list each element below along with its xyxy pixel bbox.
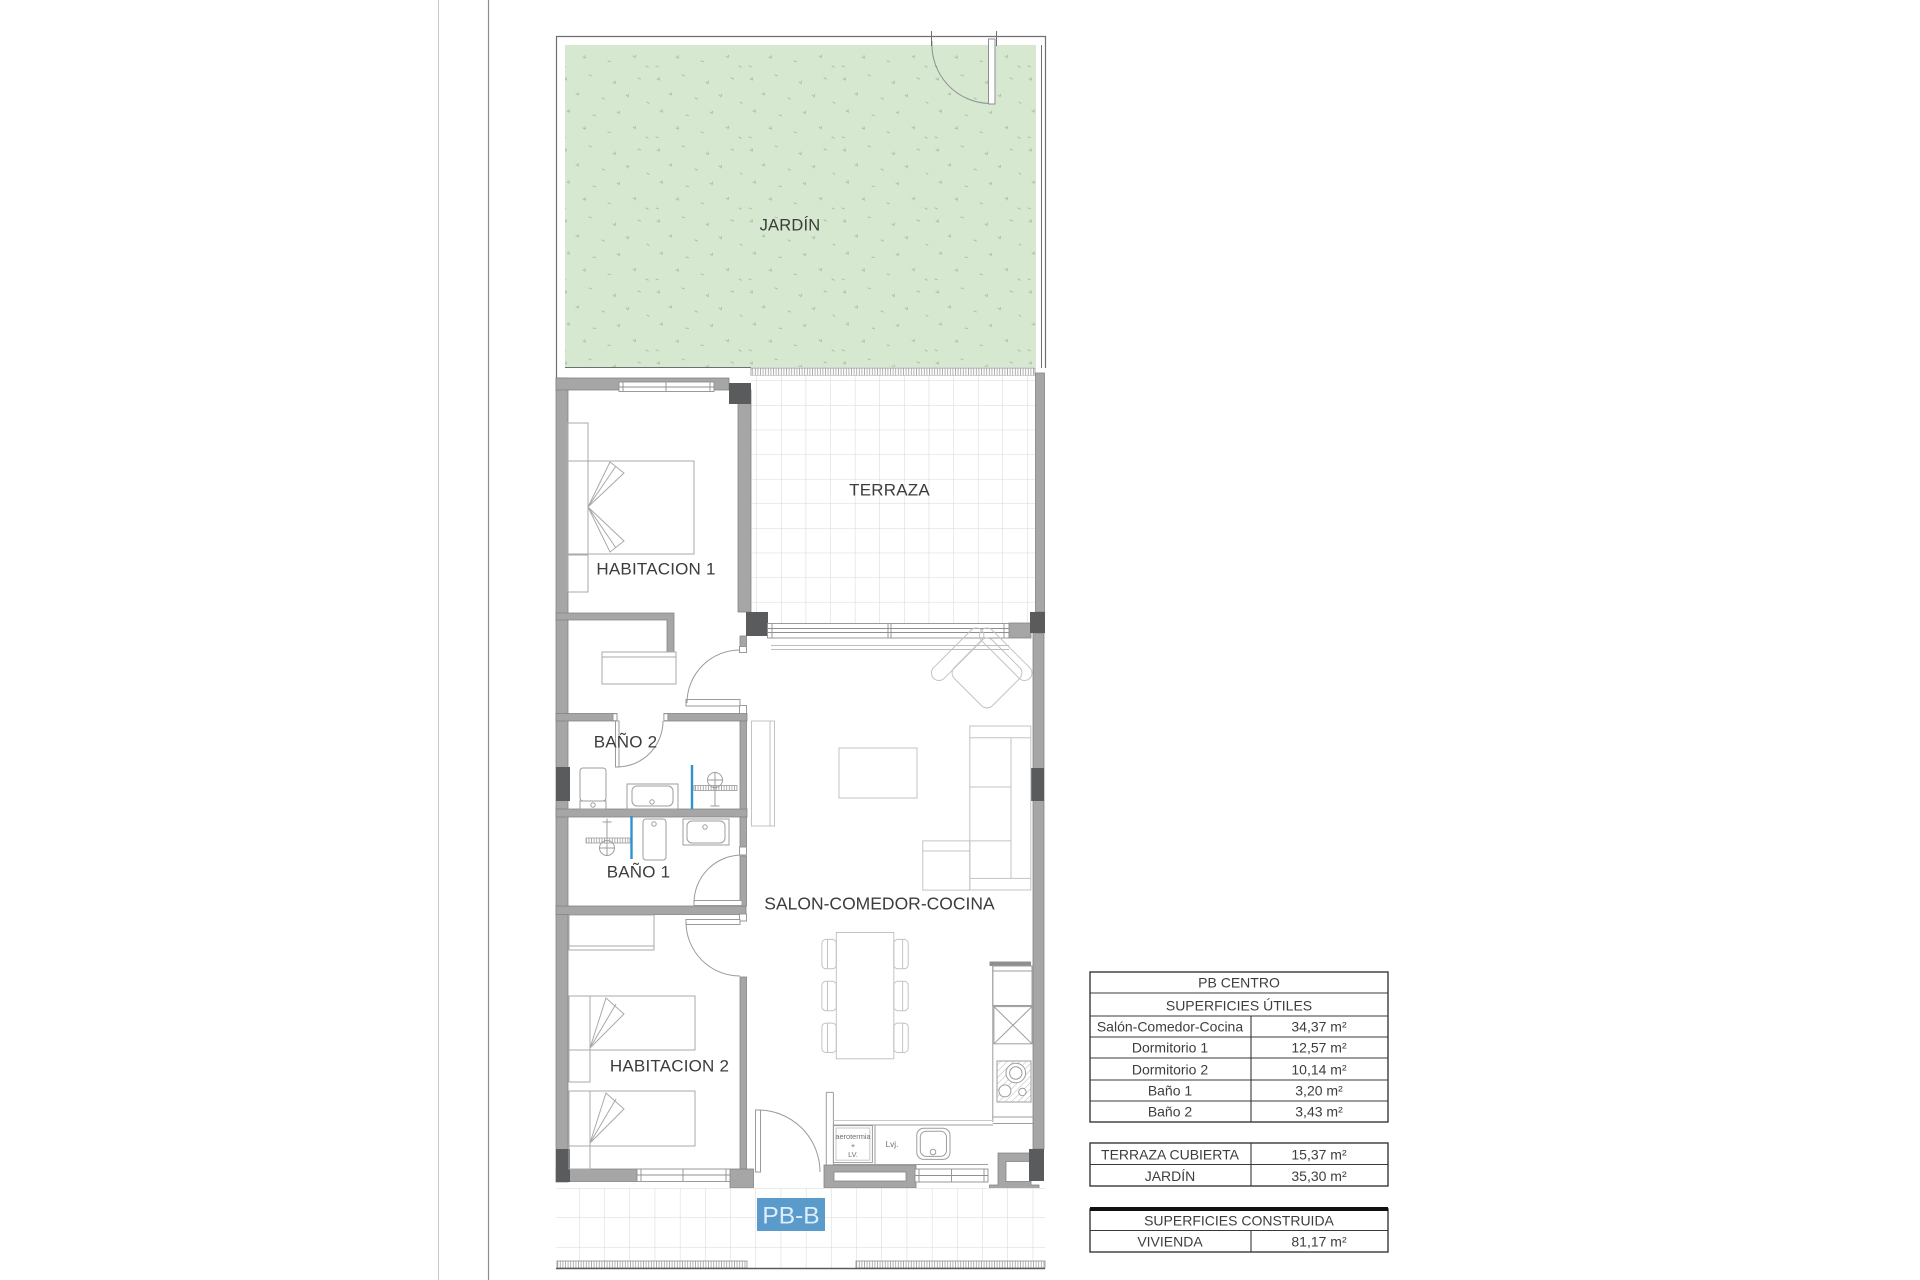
svg-text:aerotermia: aerotermia bbox=[835, 1132, 871, 1141]
svg-text:SUPERFICIES ÚTILES: SUPERFICIES ÚTILES bbox=[1166, 998, 1312, 1014]
svg-text:15,37 m²: 15,37 m² bbox=[1291, 1147, 1347, 1163]
svg-text:10,14 m²: 10,14 m² bbox=[1291, 1062, 1347, 1078]
svg-text:PB-B: PB-B bbox=[762, 1203, 819, 1230]
svg-text:PB CENTRO: PB CENTRO bbox=[1198, 975, 1280, 991]
svg-text:VIVIENDA: VIVIENDA bbox=[1137, 1234, 1203, 1250]
svg-text:Salón-Comedor-Cocina: Salón-Comedor-Cocina bbox=[1097, 1019, 1244, 1035]
svg-text:TERRAZA: TERRAZA bbox=[849, 481, 930, 500]
svg-text:34,37 m²: 34,37 m² bbox=[1291, 1019, 1347, 1035]
svg-text:LV.: LV. bbox=[848, 1150, 858, 1159]
svg-text:35,30 m²: 35,30 m² bbox=[1291, 1168, 1347, 1184]
svg-text:SUPERFICIES CONSTRUIDA: SUPERFICIES CONSTRUIDA bbox=[1144, 1213, 1334, 1229]
svg-text:Baño 2: Baño 2 bbox=[1148, 1104, 1193, 1120]
svg-text:JARDÍN: JARDÍN bbox=[1145, 1168, 1196, 1184]
svg-text:JARDÍN: JARDÍN bbox=[760, 216, 821, 235]
svg-text:BAÑO 2: BAÑO 2 bbox=[594, 733, 658, 752]
svg-text:3,20 m²: 3,20 m² bbox=[1295, 1083, 1343, 1099]
svg-text:12,57 m²: 12,57 m² bbox=[1291, 1040, 1347, 1056]
svg-text:3,43 m²: 3,43 m² bbox=[1295, 1104, 1343, 1120]
svg-text:HABITACION 1: HABITACION 1 bbox=[596, 560, 715, 579]
svg-text:TERRAZA CUBIERTA: TERRAZA CUBIERTA bbox=[1101, 1147, 1240, 1163]
svg-text:+: + bbox=[851, 1141, 855, 1150]
svg-text:81,17 m²: 81,17 m² bbox=[1291, 1234, 1347, 1250]
svg-text:Dormitorio 2: Dormitorio 2 bbox=[1132, 1062, 1208, 1078]
svg-text:SALON-COMEDOR-COCINA: SALON-COMEDOR-COCINA bbox=[764, 894, 995, 914]
svg-text:Lvj.: Lvj. bbox=[886, 1140, 899, 1149]
svg-text:HABITACION 2: HABITACION 2 bbox=[610, 1057, 729, 1076]
svg-text:Dormitorio 1: Dormitorio 1 bbox=[1132, 1040, 1208, 1056]
svg-text:BAÑO 1: BAÑO 1 bbox=[607, 863, 671, 882]
svg-text:Baño 1: Baño 1 bbox=[1148, 1083, 1193, 1099]
